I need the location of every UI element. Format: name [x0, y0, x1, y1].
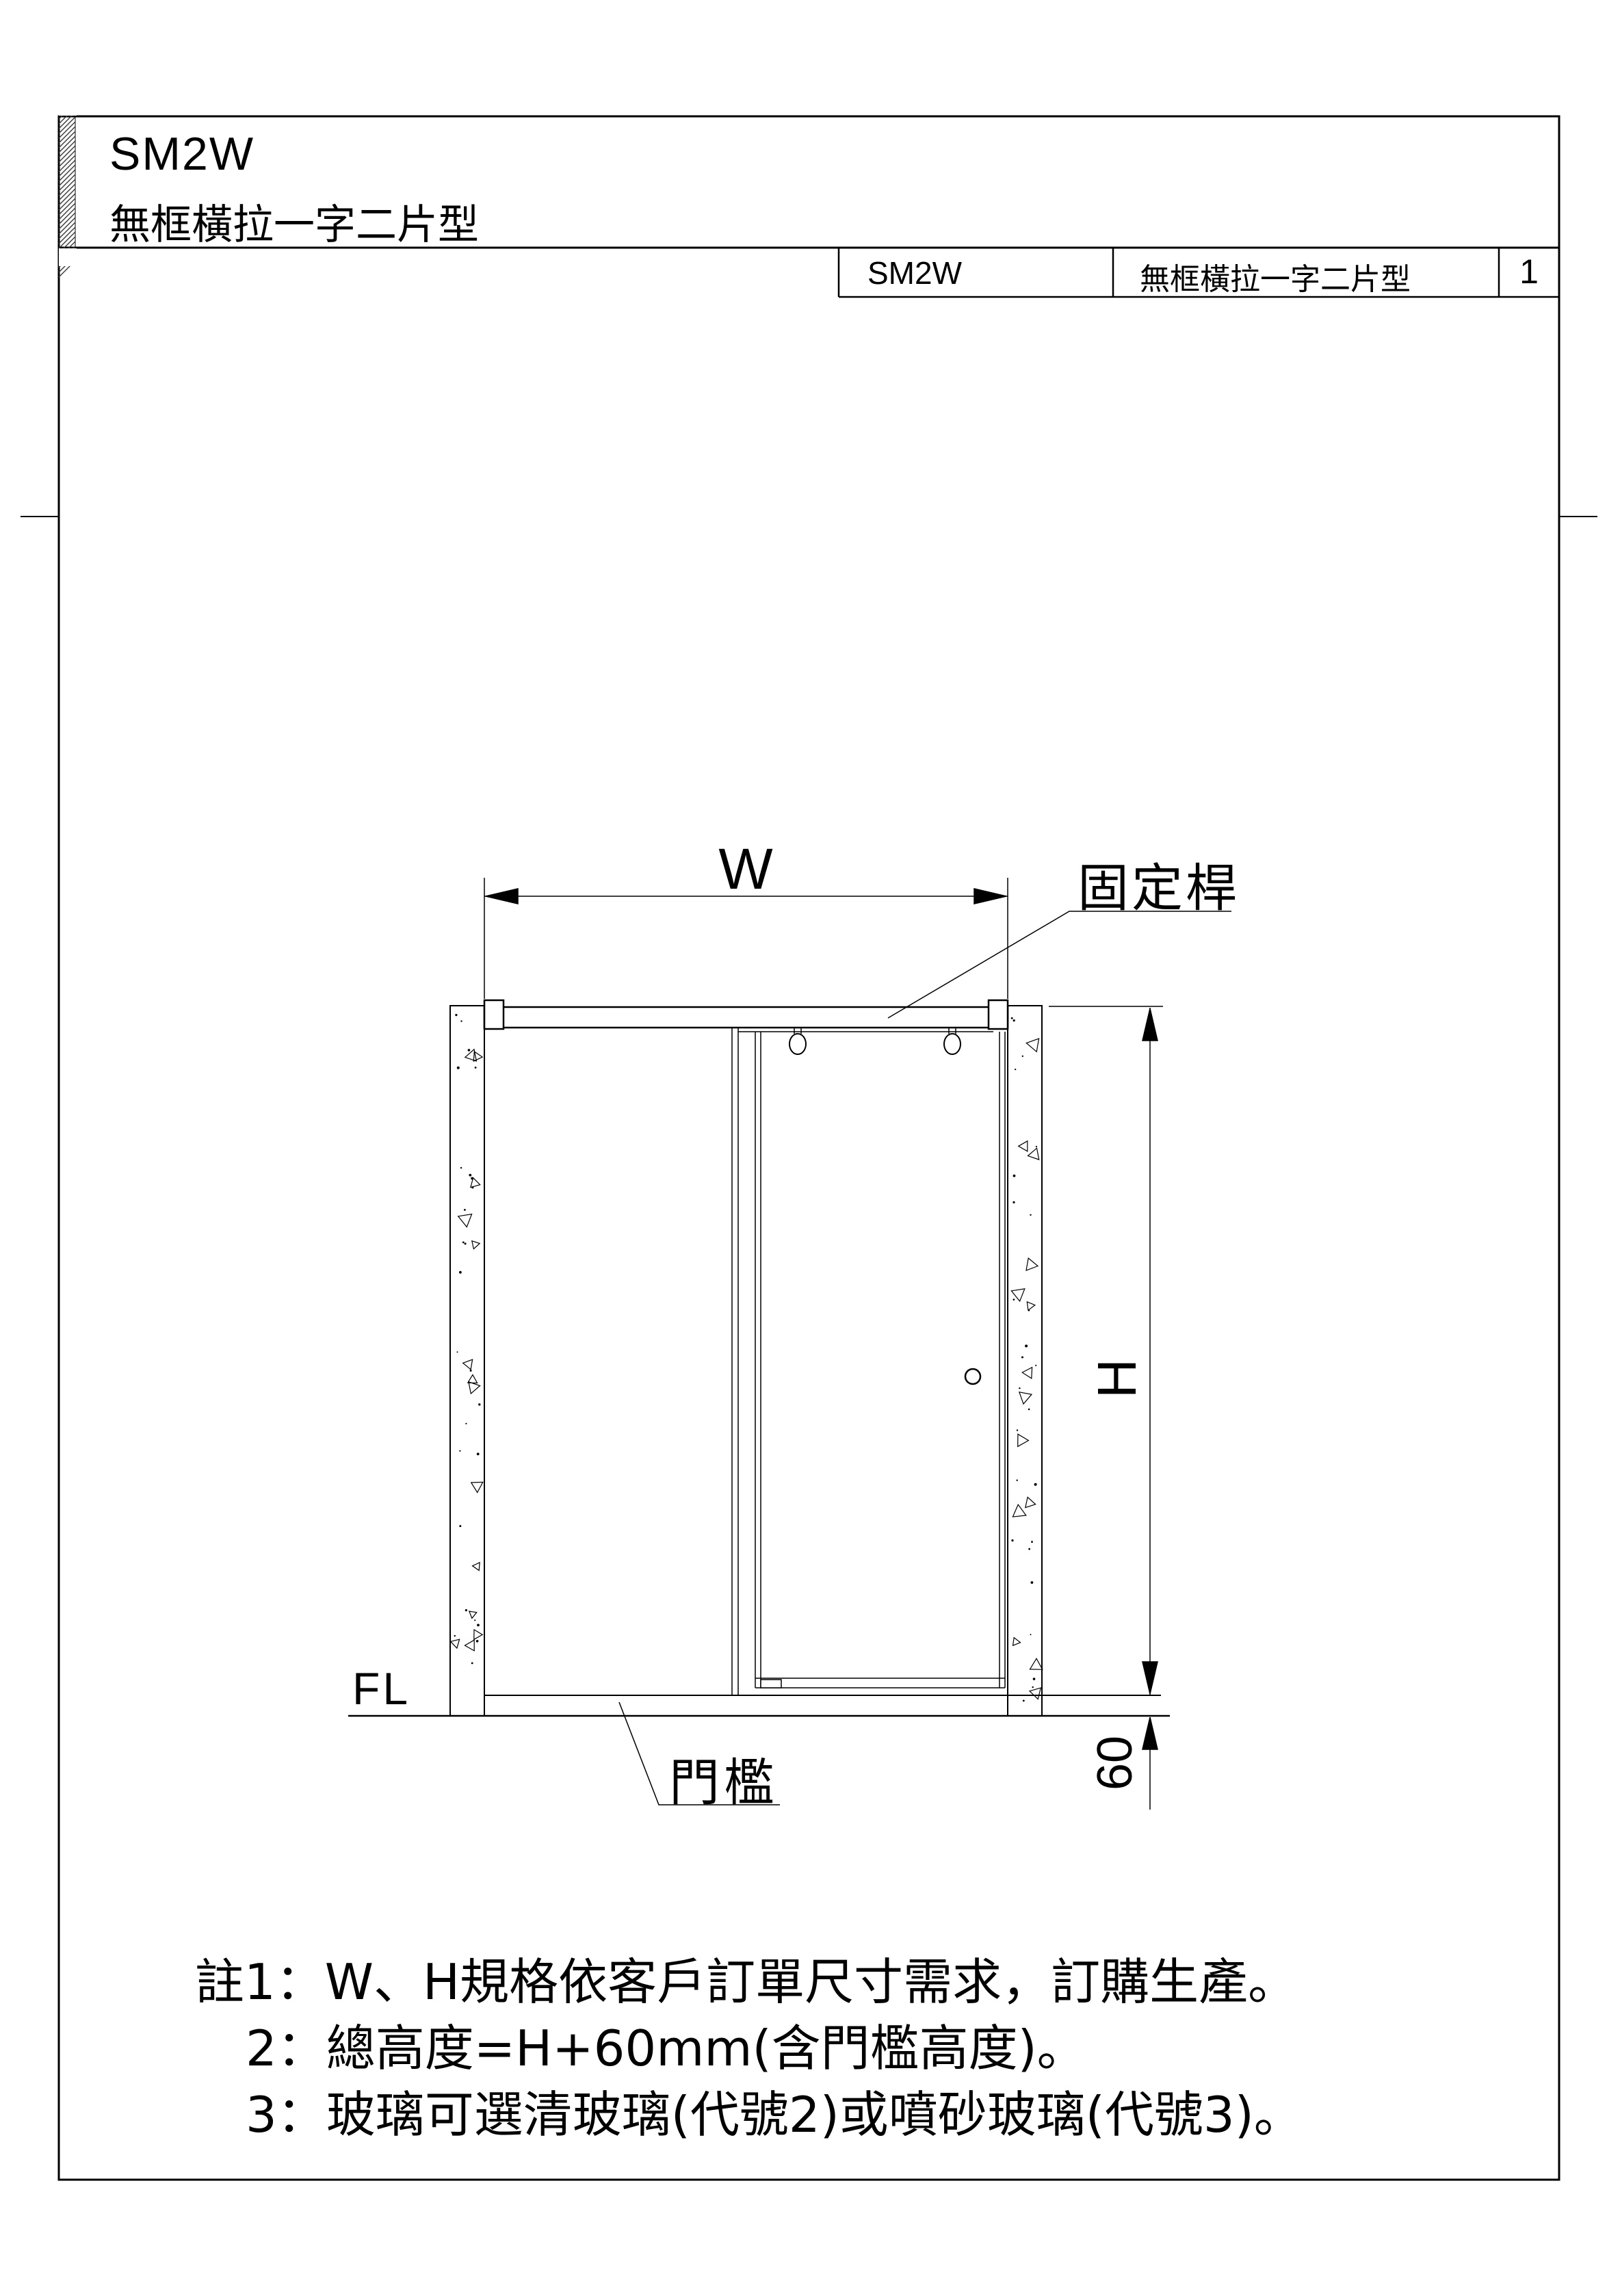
right-wall-section — [1008, 1006, 1042, 1716]
fixed-bar — [484, 1007, 1008, 1028]
header-hatch-pattern — [59, 96, 77, 277]
dim-w-arrow-left — [486, 889, 518, 904]
dim-h-arrow-bottom — [1142, 1662, 1158, 1694]
floor-level-text: FL — [352, 1662, 410, 1714]
leader-fixed-bar — [888, 911, 1231, 1018]
sheet-border — [59, 116, 1559, 2180]
titleblock-page-number: 1 — [1499, 252, 1559, 291]
sliding-glass-panel — [755, 1032, 1005, 1688]
dim-60-text: 60 — [1077, 1725, 1153, 1801]
titleblock-type-cell: 無框橫拉一字二片型 — [1140, 255, 1411, 298]
notes-block: 註1：W、H規格依客戶訂單尺寸需求，訂購生產。 2：總高度=H+60mm(含門檻… — [195, 1949, 1303, 2148]
threshold-callout-text: 門檻 — [669, 1742, 779, 1815]
fixed-glass-panel — [732, 1028, 738, 1695]
dim-h-arrow-top — [1142, 1008, 1158, 1041]
note-line-3: 3：玻璃可選清玻璃(代號2)或噴砂玻璃(代號3)。 — [195, 2082, 1303, 2148]
dim-h-text: H — [1086, 1344, 1148, 1413]
note-line-1: 註1：W、H規格依客戶訂單尺寸需求，訂購生產。 — [195, 1949, 1303, 2015]
drawing-sheet: SM2W 無框橫拉一字二片型 SM2W 無框橫拉一字二片型 1 W 固定桿 H … — [0, 0, 1620, 2296]
note-line-2: 2：總高度=H+60mm(含門檻高度)。 — [195, 2015, 1303, 2082]
page-subtitle: 無框橫拉一字二片型 — [109, 192, 479, 251]
titleblock-model-cell: SM2W — [867, 255, 962, 291]
left-wall-section — [450, 1006, 484, 1716]
concrete-texture — [451, 1014, 1043, 1701]
fixed-bar-bracket-left — [484, 1000, 504, 1029]
dim-w-arrow-right — [974, 889, 1006, 904]
page-title: SM2W — [109, 127, 254, 181]
dim-w-text: W — [711, 836, 780, 902]
fixed-bar-bracket-right — [989, 1000, 1008, 1029]
fixed-bar-callout-text: 固定桿 — [1077, 846, 1240, 921]
door-knob — [965, 1369, 980, 1384]
